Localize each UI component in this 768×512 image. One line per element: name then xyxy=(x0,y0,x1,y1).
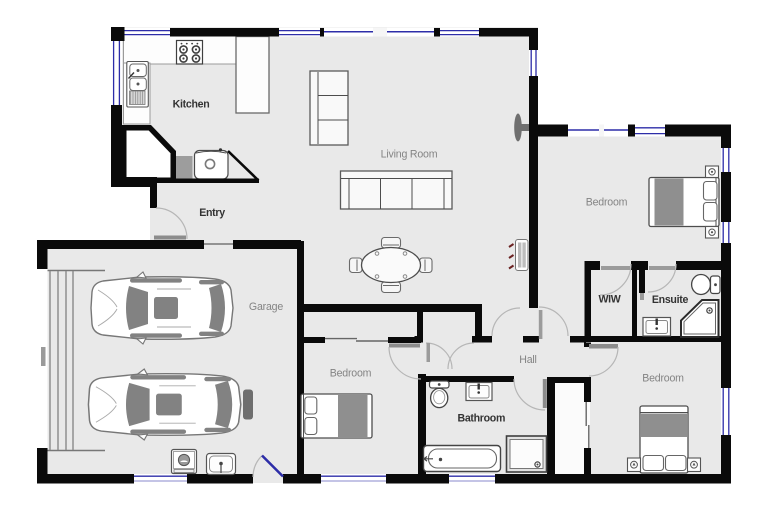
svg-text:Ensuite: Ensuite xyxy=(652,294,689,306)
svg-text:Kitchen: Kitchen xyxy=(173,99,210,111)
svg-text:Hall: Hall xyxy=(519,354,536,366)
svg-text:Bedroom: Bedroom xyxy=(586,197,628,209)
svg-text:WIW: WIW xyxy=(598,294,620,306)
svg-text:Garage: Garage xyxy=(249,301,283,313)
svg-text:Bathroom: Bathroom xyxy=(457,412,505,424)
svg-text:Living Room: Living Room xyxy=(381,149,438,161)
svg-text:Bedroom: Bedroom xyxy=(330,368,372,380)
svg-text:Entry: Entry xyxy=(199,207,225,219)
svg-text:Bedroom: Bedroom xyxy=(642,373,684,385)
